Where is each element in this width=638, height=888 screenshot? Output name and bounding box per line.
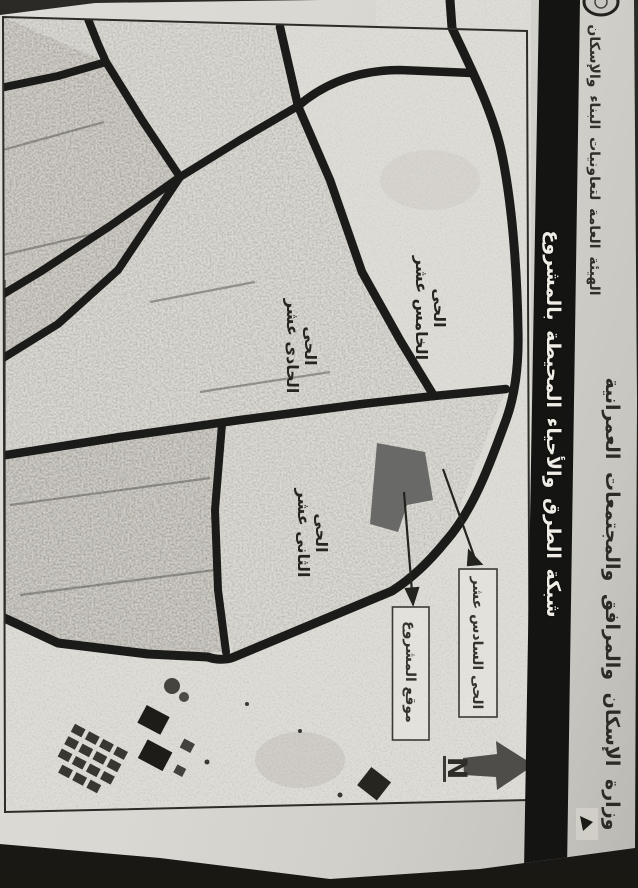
photo-background: وزارة الإسكان والمرافق والمجتمعات العمرا… xyxy=(0,0,638,888)
authority-header-line: الهيئة العامة لتعاونيات البناء والإسكان xyxy=(583,15,605,305)
district-label-line: الثانى عشر xyxy=(294,489,312,578)
ministry-header-line: وزارة الإسكان والمرافق والمجتمعات العمرا… xyxy=(600,324,624,884)
map-area xyxy=(0,0,534,816)
district-label-line: الحى xyxy=(312,513,330,552)
project-site-callout-label: موقع المشروع xyxy=(400,607,420,737)
ministry-logo-icon xyxy=(584,0,618,15)
district-label-line: الحى xyxy=(301,326,319,365)
document-page: وزارة الإسكان والمرافق والمجتمعات العمرا… xyxy=(0,0,638,888)
district-11-label: الحى الحادى عشر xyxy=(281,286,321,406)
district-label-line: الحى xyxy=(430,288,448,327)
district-15-label: الحى الخامس عشر xyxy=(410,248,450,368)
district-label-line: الحادى عشر xyxy=(283,299,301,394)
band-title: شبكة الطرق والأحياء المحيطة بالمشروع xyxy=(540,244,566,604)
district-label-line: الخامس عشر xyxy=(412,256,430,360)
district-16-callout-label: الحى السادس عشر xyxy=(468,569,486,717)
district-12-label: الحى الثانى عشر xyxy=(292,473,332,593)
north-label: N xyxy=(442,753,472,783)
margin-mark xyxy=(576,808,598,840)
